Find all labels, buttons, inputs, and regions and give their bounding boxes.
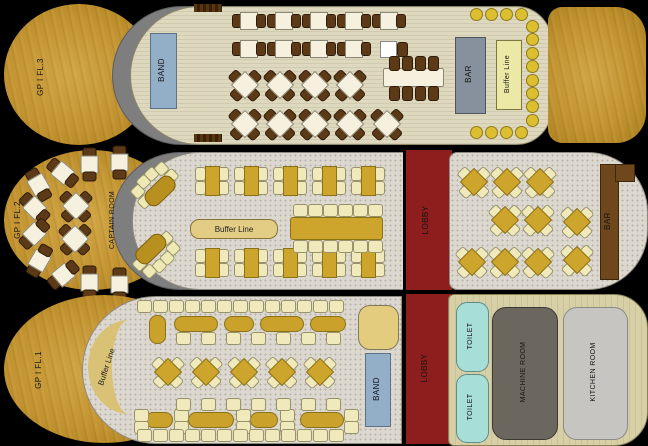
- chair: [276, 398, 291, 411]
- chair: [293, 204, 308, 217]
- gangway-hatch: [194, 4, 222, 12]
- chair: [329, 300, 344, 313]
- chair: [428, 86, 439, 101]
- chair: [415, 56, 426, 71]
- pill-table: [188, 412, 234, 428]
- chair: [326, 398, 341, 411]
- chair: [137, 300, 152, 313]
- chair: [233, 429, 248, 442]
- chair: [428, 56, 439, 71]
- chair: [308, 204, 323, 217]
- chair: [402, 56, 413, 71]
- chair: [415, 86, 426, 101]
- toilet-label-2: TOILET: [466, 372, 476, 442]
- chair: [281, 429, 296, 442]
- band-label-fl1: BAND: [372, 354, 382, 424]
- bar-stool: [485, 126, 498, 139]
- bar-stool: [485, 8, 498, 21]
- chair: [301, 332, 316, 345]
- bar-stool: [526, 114, 539, 127]
- chair: [201, 398, 216, 411]
- bar-stool: [526, 47, 539, 60]
- chair: [389, 56, 400, 71]
- table-2-seat: [82, 148, 99, 182]
- bar-stool: [515, 126, 528, 139]
- gangway-hatch: [194, 134, 222, 142]
- chair: [329, 429, 344, 442]
- chair: [226, 398, 241, 411]
- chair: [153, 300, 168, 313]
- chair: [233, 300, 248, 313]
- bar-label-fl3: BAR: [464, 39, 474, 109]
- chair: [169, 429, 184, 442]
- bar-stool: [526, 20, 539, 33]
- chair: [338, 204, 353, 217]
- chair: [176, 332, 191, 345]
- chair: [265, 429, 280, 442]
- table-2-seat: [302, 40, 336, 57]
- chair: [368, 204, 383, 217]
- chair: [281, 300, 296, 313]
- table-2-seat: [112, 146, 129, 180]
- lobby-label-fl2: LOBBY: [421, 185, 431, 255]
- chair: [308, 240, 323, 253]
- table-4-seat: [234, 248, 268, 276]
- chair: [326, 332, 341, 345]
- pill-table: [149, 315, 166, 344]
- table-2-seat: [372, 12, 406, 29]
- chair: [344, 421, 359, 434]
- table-4-seat: [234, 166, 268, 194]
- bar-stool: [470, 8, 483, 21]
- bar-stool: [526, 74, 539, 87]
- table-4-seat: [195, 248, 229, 276]
- bar-counter-arm-fl2: [615, 164, 635, 182]
- pill-table: [145, 412, 173, 428]
- lobby-label-fl1: LOBBY: [420, 333, 430, 403]
- table-2-seat: [337, 12, 371, 29]
- pill-table: [300, 412, 344, 428]
- chair: [397, 42, 408, 57]
- chair: [323, 240, 338, 253]
- chair: [251, 332, 266, 345]
- chair: [201, 300, 216, 313]
- chair: [201, 332, 216, 345]
- table-2-seat: [267, 12, 301, 29]
- chair: [201, 429, 216, 442]
- chair: [153, 429, 168, 442]
- bar-stool: [500, 8, 513, 21]
- chair: [323, 204, 338, 217]
- table-4-seat: [312, 166, 346, 194]
- chair: [169, 300, 184, 313]
- chair: [389, 86, 400, 101]
- table-4-seat: [195, 166, 229, 194]
- stern-hull-fl3: [548, 7, 646, 143]
- chair: [276, 332, 291, 345]
- machine-room-label: MACHINE ROOM: [519, 337, 529, 407]
- deck-fl2: GP I FL.2 CAPTAIN ROOM Buffer Line LOBBY…: [4, 150, 646, 290]
- chair: [297, 300, 312, 313]
- chair: [217, 300, 232, 313]
- deck-fl1: GP I FL.1 Buffer Line BAND LOBBY TOILET …: [4, 293, 646, 445]
- chair: [313, 429, 328, 442]
- table-2-seat: [232, 12, 266, 29]
- chair: [338, 240, 353, 253]
- bar-stool: [515, 8, 528, 21]
- stage-fl1: [358, 305, 399, 350]
- table-2-seat: [302, 12, 336, 29]
- chair: [293, 240, 308, 253]
- chair: [176, 398, 191, 411]
- deck-fl3: GP I FL.3 BAND BAR Buffer Line: [4, 4, 644, 145]
- buffet-line-fl2: Buffer Line: [190, 219, 278, 239]
- chair: [353, 204, 368, 217]
- bar-stool: [526, 87, 539, 100]
- chair: [185, 429, 200, 442]
- pill-table: [224, 316, 254, 332]
- boat-floor-plan: GP I FL.3 BAND BAR Buffer Line GP I FL.2…: [0, 0, 648, 446]
- deck-label-fl3: GP I FL.3: [36, 42, 46, 112]
- chair: [353, 240, 368, 253]
- pill-table: [260, 316, 304, 332]
- table-4-seat: [273, 166, 307, 194]
- buffet-label-fl3: Buffer Line: [503, 39, 513, 109]
- toilet-label-1: TOILET: [466, 301, 476, 371]
- chair: [265, 300, 280, 313]
- table-2-seat: [267, 40, 301, 57]
- table-2-seat: [232, 40, 266, 57]
- pill-table: [310, 316, 346, 332]
- chair: [249, 429, 264, 442]
- pill-table: [174, 316, 218, 332]
- band-label-fl3: BAND: [157, 35, 167, 105]
- chair: [301, 398, 316, 411]
- chair: [217, 429, 232, 442]
- table-2-seat: [337, 40, 371, 57]
- chair: [402, 86, 413, 101]
- bar-stool: [470, 126, 483, 139]
- bar-label-fl2: BAR: [603, 186, 613, 256]
- chair: [297, 429, 312, 442]
- chair: [251, 398, 266, 411]
- chair: [368, 240, 383, 253]
- chair: [249, 300, 264, 313]
- chair: [185, 300, 200, 313]
- chair: [313, 300, 328, 313]
- banquet-table: [290, 217, 383, 240]
- deck-label-fl1: GP I FL.1: [34, 335, 44, 405]
- chair: [137, 429, 152, 442]
- pill-table: [250, 412, 278, 428]
- table-4-seat: [351, 166, 385, 194]
- bar-stool: [500, 126, 513, 139]
- captain-room-label: CAPTAIN ROOM: [108, 185, 118, 255]
- chair: [226, 332, 241, 345]
- kitchen-room-label: KITCHEN ROOM: [589, 337, 599, 407]
